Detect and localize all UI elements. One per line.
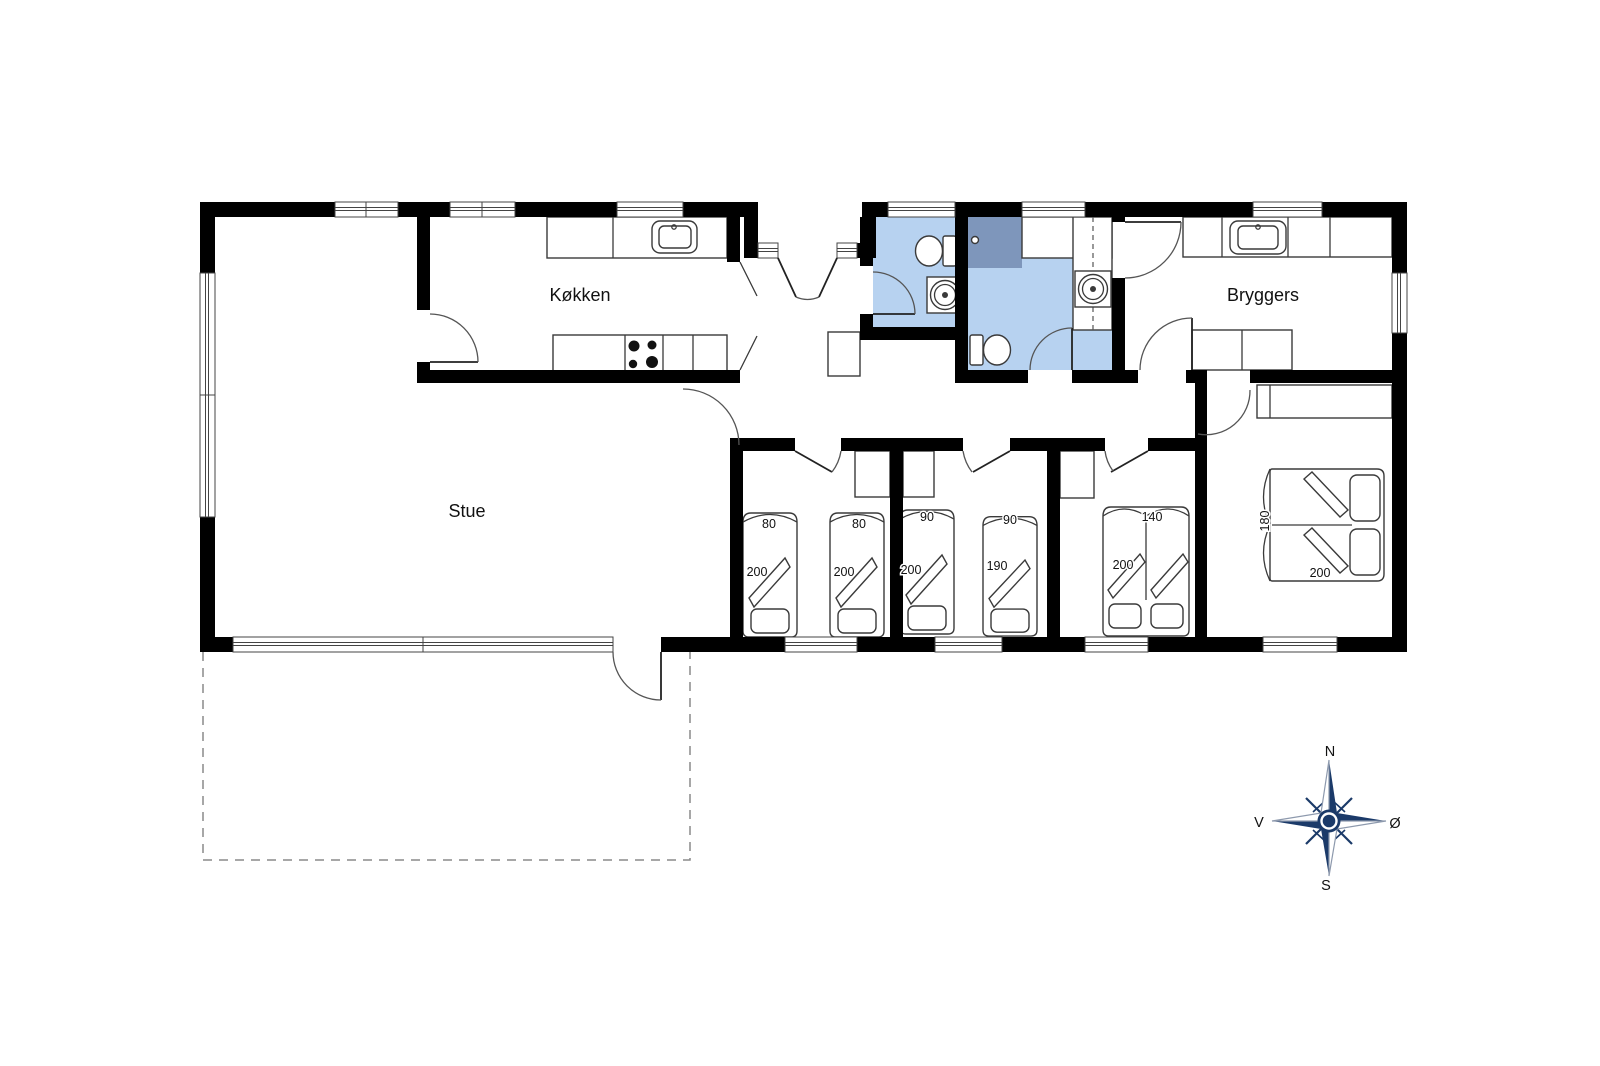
door-bedroom-2 xyxy=(963,451,1010,472)
window xyxy=(1085,637,1148,652)
room-label-kitchen: Køkken xyxy=(549,285,610,305)
bed-width-label: 90 xyxy=(920,510,934,524)
shower-door-handle xyxy=(972,237,979,244)
bed-width-label: 80 xyxy=(762,517,776,531)
bed-90-190 xyxy=(983,517,1037,636)
bed-width-label: 180 xyxy=(1258,511,1272,532)
bed-width-label: 90 xyxy=(1003,513,1017,527)
wardrobe xyxy=(855,451,890,497)
wardrobe xyxy=(1060,451,1094,498)
door-bedroom-1 xyxy=(795,451,841,472)
terrace-outline xyxy=(203,652,690,860)
bed-length-label: 200 xyxy=(901,563,922,577)
toilet-icon xyxy=(916,236,957,266)
window xyxy=(888,202,955,217)
compass-rose: N S V Ø xyxy=(1254,744,1400,894)
bed-length-label: 190 xyxy=(987,559,1008,573)
bed-180 xyxy=(1264,469,1385,581)
bed-length-label: 200 xyxy=(1113,558,1134,572)
bed-length-label: 200 xyxy=(747,565,768,579)
washbasin-icon xyxy=(1075,271,1111,307)
toilet-icon xyxy=(970,335,1011,365)
compass-label-north: N xyxy=(1325,744,1335,760)
bed-length-label: 200 xyxy=(1310,566,1331,580)
window xyxy=(450,202,515,217)
bed-length-label: 200 xyxy=(834,565,855,579)
window xyxy=(617,202,683,217)
door-entrance xyxy=(778,258,837,300)
door-bedroom-3 xyxy=(1105,451,1148,472)
kitchen-counter-top xyxy=(547,217,727,258)
bed-width-label: 80 xyxy=(852,517,866,531)
compass-label-east: Ø xyxy=(1389,816,1400,832)
window xyxy=(1253,202,1322,217)
room-label-utility: Bryggers xyxy=(1227,285,1299,305)
compass-label-west: V xyxy=(1254,815,1264,831)
window xyxy=(758,243,778,258)
window xyxy=(1392,273,1407,333)
floorplan-drawing: Køkken Stue Bryggers 80 200 80 200 90 20… xyxy=(0,0,1600,1066)
door-kitchen xyxy=(430,314,478,362)
floorplan-page: Køkken Stue Bryggers 80 200 80 200 90 20… xyxy=(0,0,1600,1066)
room-label-living-room: Stue xyxy=(448,501,485,521)
window xyxy=(935,637,1002,652)
window xyxy=(1022,202,1085,217)
door-terrace xyxy=(613,652,661,700)
door-utility-left xyxy=(1125,222,1181,278)
window xyxy=(785,637,857,652)
window xyxy=(335,202,398,217)
window xyxy=(200,273,215,517)
opening-living-hall xyxy=(683,389,739,445)
hall-cabinet xyxy=(828,332,860,376)
wardrobe xyxy=(903,451,934,497)
window xyxy=(1263,637,1337,652)
opening-kitchen-hall xyxy=(740,262,757,370)
door-utility-hall xyxy=(1140,318,1192,370)
walls xyxy=(200,202,1407,652)
window xyxy=(233,637,613,652)
windows xyxy=(200,202,1407,652)
bed-width-label: 140 xyxy=(1142,510,1163,524)
wardrobe xyxy=(1257,385,1392,418)
window xyxy=(837,243,857,258)
kitchen-counter-bottom xyxy=(553,335,727,373)
compass-label-south: S xyxy=(1321,878,1331,894)
